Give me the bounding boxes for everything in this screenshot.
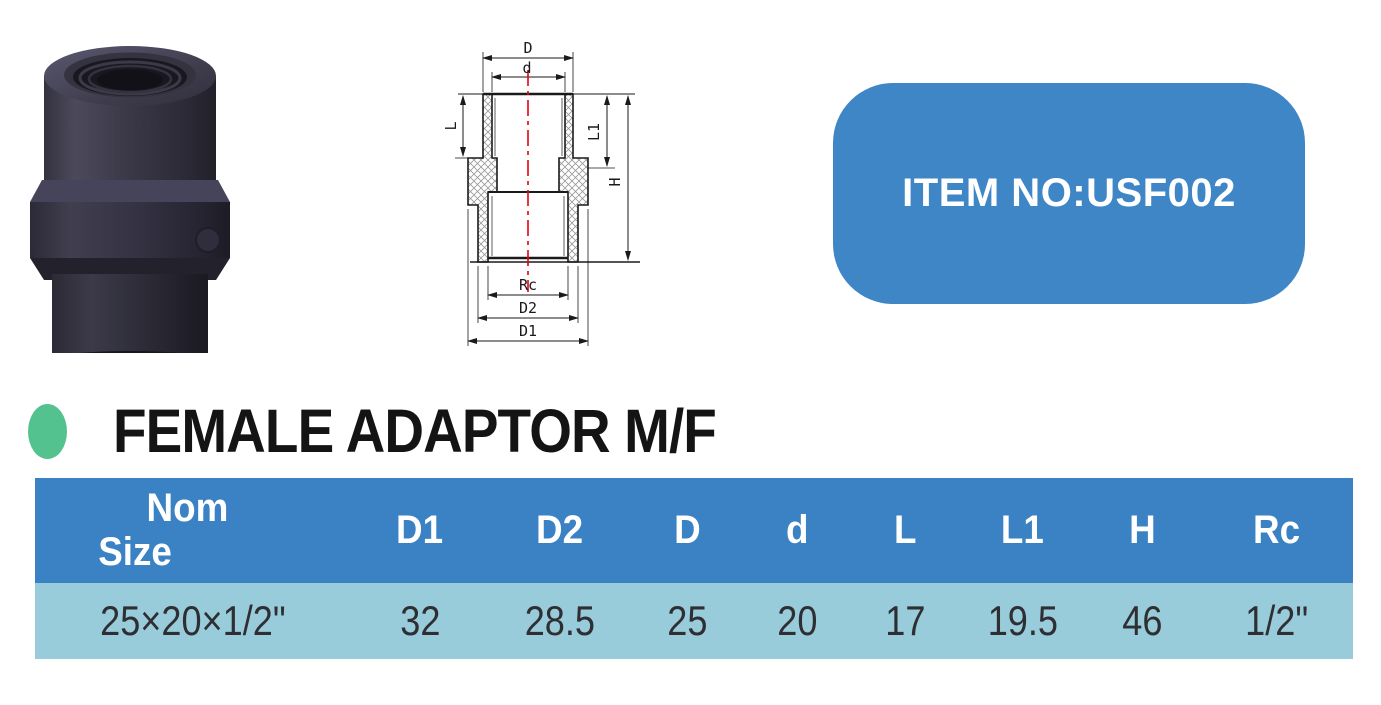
col-header-l: L <box>850 478 960 583</box>
photo-hole <box>97 70 163 91</box>
photo-boss-detail <box>196 228 220 252</box>
cell-nom-size-value: 25×20×1/2" <box>100 597 286 645</box>
col-header-h-label: H <box>1129 508 1156 553</box>
dim-label-Rc: Rc <box>519 276 537 294</box>
cell-l: 17 <box>850 583 960 659</box>
cell-l1: 19.5 <box>960 583 1085 659</box>
cell-d1-value: 32 <box>400 597 440 645</box>
cell-nom-size: 25×20×1/2" <box>35 583 350 659</box>
photo-lower-body <box>52 274 208 353</box>
dim-label-D2: D2 <box>519 299 537 317</box>
cell-l1-value: 19.5 <box>987 597 1057 645</box>
dim-label-L: L <box>442 121 460 130</box>
table-row: 25×20×1/2" 32 28.5 25 20 17 19.5 46 1/2" <box>35 583 1353 659</box>
col-header-nom-size: Nom Size <box>35 478 350 583</box>
table-header-row: Nom Size D1 D2 D d L L1 H Rc <box>35 478 1353 583</box>
col-header-dcap: D <box>630 478 745 583</box>
drawing-left-wall <box>468 94 497 262</box>
col-header-l1: L1 <box>960 478 1085 583</box>
drawing-right-wall <box>559 94 588 262</box>
dim-label-H: H <box>606 177 624 186</box>
dim-label-d: d <box>522 59 531 77</box>
col-header-dcap-label: D <box>674 508 701 553</box>
cell-rc: 1/2" <box>1200 583 1353 659</box>
cell-dcap: 25 <box>630 583 745 659</box>
cell-dcap-value: 25 <box>667 597 707 645</box>
section-title-block: FEMALE ADAPTOR M/F <box>28 396 783 466</box>
col-header-d2: D2 <box>490 478 630 583</box>
col-header-l1-label: L1 <box>1001 508 1044 553</box>
dim-label-D: D <box>523 39 532 57</box>
col-header-d1-label: D1 <box>396 508 443 553</box>
cell-d1: 32 <box>350 583 490 659</box>
col-header-rc: Rc <box>1200 478 1353 583</box>
spec-table: Nom Size D1 D2 D d L L1 H Rc 25×20×1/2" … <box>35 478 1353 659</box>
cell-d2-value: 28.5 <box>525 597 595 645</box>
col-header-dsmall-label: d <box>786 508 808 553</box>
cell-rc-value: 1/2" <box>1245 597 1308 645</box>
technical-drawing: D d L L1 H Rc D2 D1 <box>425 20 655 365</box>
dim-label-D1: D1 <box>519 322 537 340</box>
item-number-text: ITEM NO:USF002 <box>902 171 1236 216</box>
col-header-d2-label: D2 <box>536 508 583 553</box>
product-photo <box>30 28 230 353</box>
cell-dsmall: 20 <box>745 583 850 659</box>
cell-d2: 28.5 <box>490 583 630 659</box>
col-header-d1: D1 <box>350 478 490 583</box>
col-header-h: H <box>1085 478 1200 583</box>
item-number-badge: ITEM NO:USF002 <box>833 83 1305 304</box>
cell-dsmall-value: 20 <box>777 597 817 645</box>
col-header-dsmall: d <box>745 478 850 583</box>
photo-hex-top-bevel <box>30 180 230 202</box>
cell-l-value: 17 <box>885 597 925 645</box>
page-title: FEMALE ADAPTOR M/F <box>113 396 716 466</box>
nom-label: Nom <box>147 487 229 530</box>
size-label: Size <box>98 531 172 574</box>
cell-h: 46 <box>1085 583 1200 659</box>
col-header-l-label: L <box>894 508 916 553</box>
cell-h-value: 46 <box>1122 597 1162 645</box>
dim-label-L1: L1 <box>585 123 603 141</box>
bullet-icon <box>28 404 67 459</box>
col-header-rc-label: Rc <box>1253 508 1300 553</box>
